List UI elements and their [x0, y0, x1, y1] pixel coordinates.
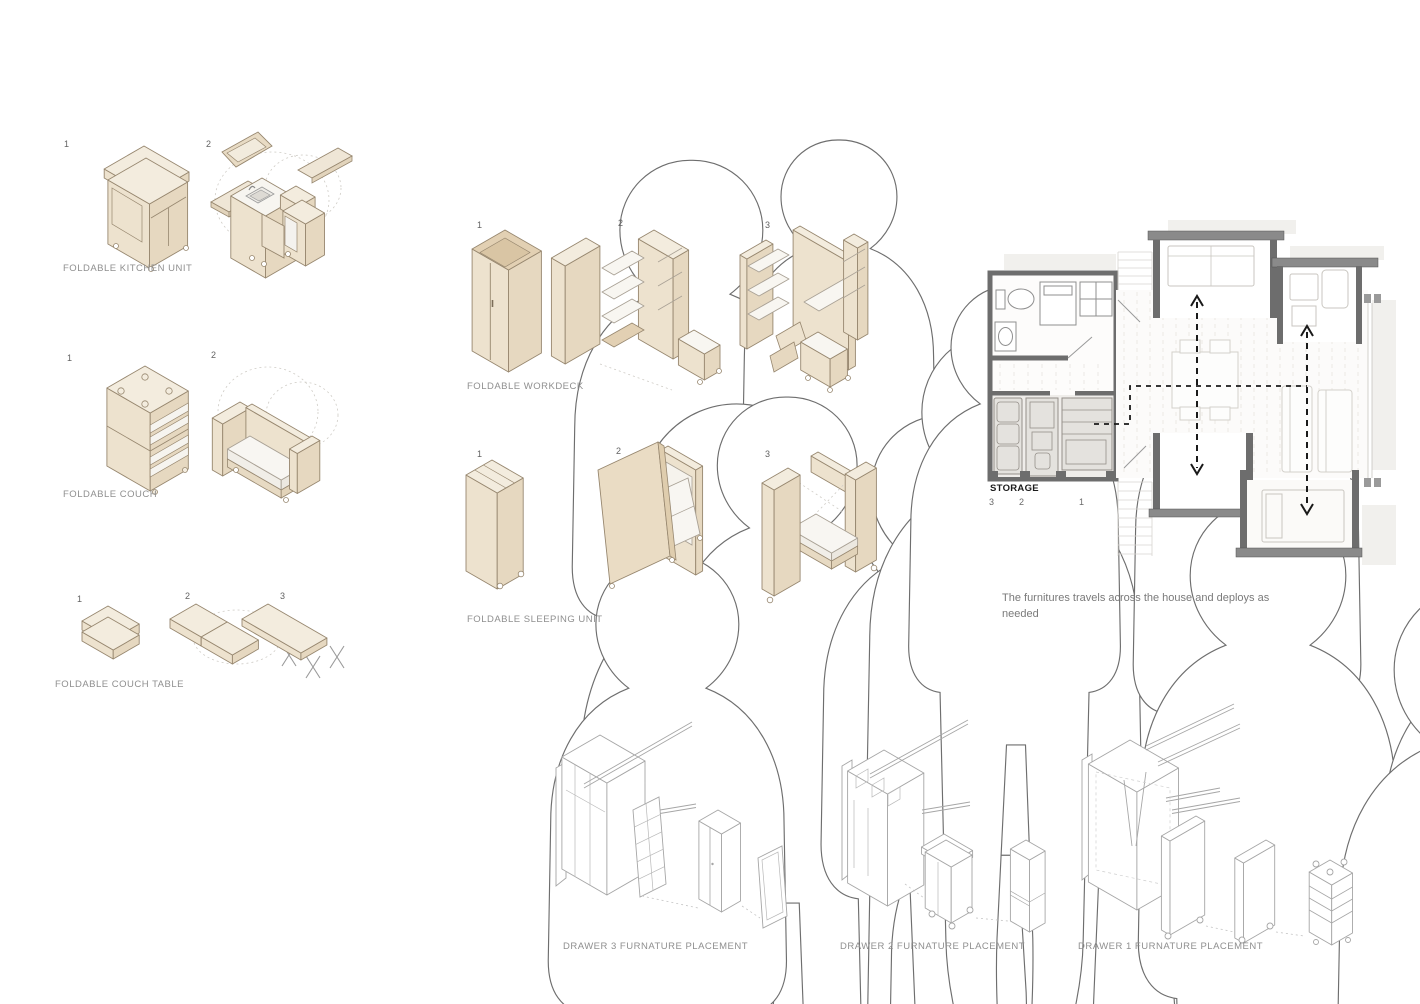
- storage-slot-1: 1: [1079, 497, 1084, 507]
- sleeping-left-panel: [762, 468, 800, 596]
- couch-label: FOLDABLE COUCH: [63, 489, 157, 500]
- sleeping-step-number-1: 1: [477, 449, 482, 459]
- sleeping-step-number-2: 2: [616, 446, 621, 456]
- storage-slot-3: 3: [989, 497, 994, 507]
- workdeck-label: FOLDABLE WORKDECK: [467, 381, 584, 392]
- workdeck-step-number-3: 3: [765, 220, 770, 230]
- sleeping-step-number-3: 3: [765, 449, 770, 459]
- sleeping-label: FOLDABLE SLEEPING UNIT: [467, 614, 603, 625]
- d2-frame: [848, 750, 924, 906]
- sleeping-step1: [466, 460, 524, 589]
- kitchen-step-number-2: 2: [206, 139, 211, 149]
- couch-step-number-1: 1: [67, 353, 72, 363]
- d2-cart: [925, 840, 972, 923]
- d3-frame: [562, 735, 645, 895]
- drawer3-placement-label: DRAWER 3 FURNATURE PLACEMENT: [563, 941, 748, 952]
- plan-caption: The furnitures travels across the house …: [1002, 591, 1302, 623]
- furniture-diagram-sheet: 1 2 FOLDABLE KITCHEN UNIT 1 2 FOLDABLE C…: [0, 0, 1420, 1004]
- workdeck-step-number-2: 2: [618, 218, 623, 228]
- couch-step-number-2: 2: [211, 350, 216, 360]
- couch-table-label: FOLDABLE COUCH TABLE: [55, 679, 184, 690]
- kitchen-step-number-1: 1: [64, 139, 69, 149]
- storage-slot-2: 2: [1019, 497, 1024, 507]
- d2-fridge: [1010, 840, 1045, 932]
- d3-cabinet: [699, 810, 741, 912]
- drawer1-placement-label: DRAWER 1 FURNATURE PLACEMENT: [1078, 941, 1263, 952]
- storage-label: STORAGE: [990, 483, 1039, 494]
- sleeping-folded-stack: [466, 460, 523, 589]
- workdeck-step-number-1: 1: [477, 220, 482, 230]
- drawer2-placement-label: DRAWER 2 FURNATURE PLACEMENT: [840, 941, 1025, 952]
- table-step-number-2: 2: [185, 591, 190, 601]
- diagram-artwork: [0, 0, 1420, 1004]
- workdeck-left-panel: [551, 238, 600, 364]
- table-step-number-3: 3: [280, 591, 285, 601]
- table-step-number-1: 1: [77, 594, 82, 604]
- kitchen-label: FOLDABLE KITCHEN UNIT: [63, 263, 192, 274]
